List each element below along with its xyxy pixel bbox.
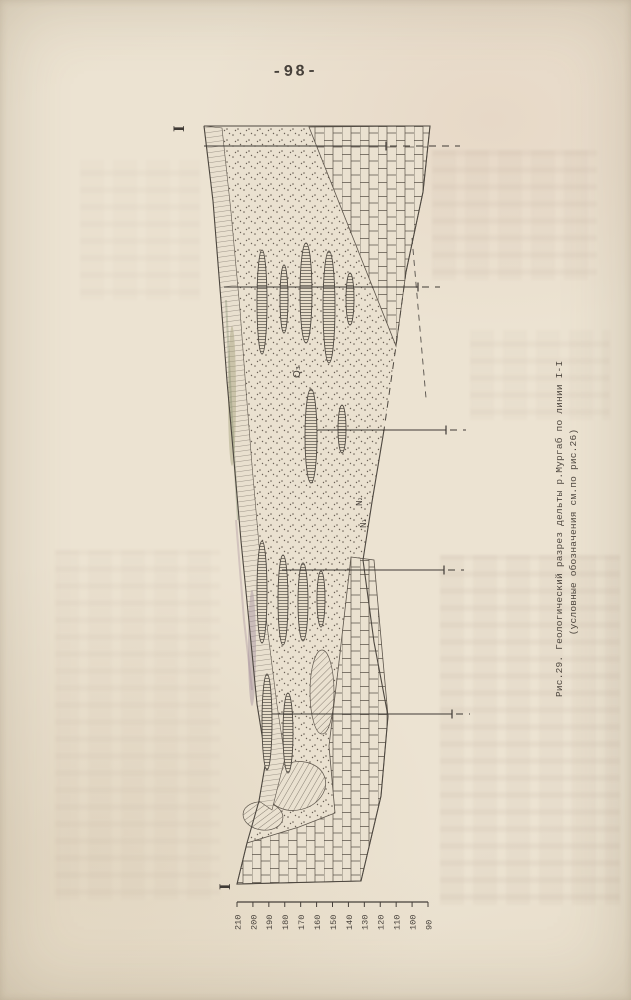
- svg-text:120: 120: [377, 915, 387, 930]
- svg-text:200: 200: [249, 915, 259, 930]
- svg-text:110: 110: [393, 915, 403, 930]
- geologic-cross-section-figure: 21020019018017016015014013012011010090 Q…: [0, 0, 631, 1000]
- svg-text:N₂: N₂: [355, 497, 364, 506]
- svg-text:160: 160: [313, 915, 323, 930]
- inferred-boundary-extension: [412, 238, 426, 398]
- figure-caption-line1: Рис.29. Геологический разрез дельты р.Му…: [553, 367, 567, 697]
- svg-text:180: 180: [281, 915, 291, 930]
- svg-text:140: 140: [345, 915, 355, 930]
- svg-text:150: 150: [329, 915, 339, 930]
- elevation-scale: 21020019018017016015014013012011010090: [233, 902, 434, 930]
- svg-text:170: 170: [297, 915, 307, 930]
- scanned-report-page: -98-: [0, 0, 631, 1000]
- svg-text:Q₃: Q₃: [292, 366, 303, 378]
- svg-text:I: I: [172, 125, 188, 132]
- figure-caption-line2: (условные обозначения см.по рис.26): [567, 367, 581, 697]
- svg-text:210: 210: [233, 915, 243, 930]
- svg-text:90: 90: [424, 920, 434, 930]
- figure-caption: Рис.29. Геологический разрез дельты р.Му…: [553, 367, 583, 697]
- svg-text:190: 190: [265, 915, 275, 930]
- svg-text:100: 100: [408, 915, 418, 930]
- svg-text:130: 130: [361, 915, 371, 930]
- svg-text:N₁: N₁: [359, 519, 368, 528]
- svg-text:I: I: [218, 883, 234, 890]
